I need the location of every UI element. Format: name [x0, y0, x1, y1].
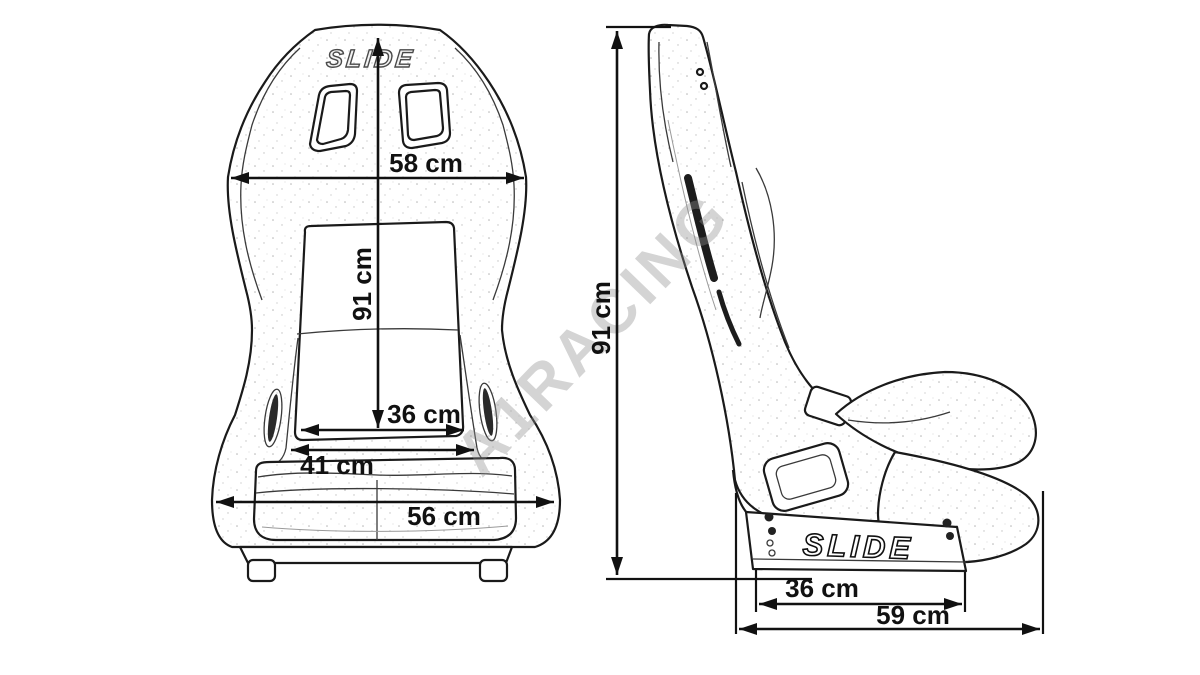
front-base-skirt	[240, 547, 512, 563]
dim-front-height-label: 91 cm	[347, 247, 377, 321]
front-view-drawing: SLIDE	[212, 25, 560, 581]
front-foot-left	[248, 560, 275, 581]
dim-front-cushion-width-label: 56 cm	[407, 501, 481, 531]
dim-front-shoulder-width-label: 58 cm	[389, 148, 463, 178]
dim-side-mount-rail-length-label: 36 cm	[785, 573, 859, 603]
dim-side-height-label: 91 cm	[586, 281, 616, 355]
front-slide-logo: SLIDE	[325, 45, 417, 73]
seat-technical-drawing-page: SLIDE	[0, 0, 1200, 675]
technical-drawing: SLIDE	[0, 0, 1200, 675]
dim-side-overall-depth-label: 59 cm	[876, 600, 950, 630]
dim-front-hip-width-label: 41 cm	[300, 450, 374, 480]
side-slide-logo: SLIDE	[802, 527, 914, 566]
side-view-drawing: SLIDE	[649, 25, 1039, 571]
front-foot-right	[480, 560, 507, 581]
dim-front-backrest-inner-width-label: 36 cm	[387, 399, 461, 429]
front-harness-hole-right	[399, 83, 450, 148]
